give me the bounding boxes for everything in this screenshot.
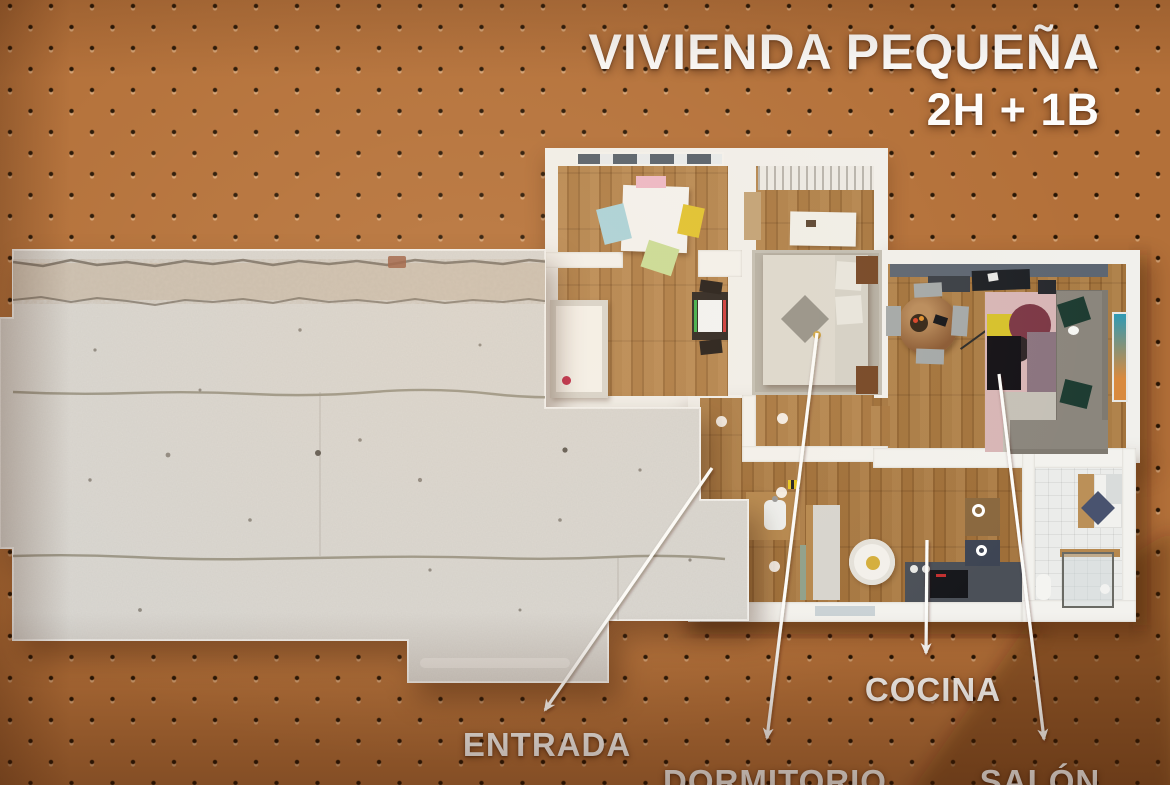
kitchen-sink [764,500,786,530]
dining-chair-left [886,306,901,336]
nightstand-2 [856,366,878,394]
painting [1112,312,1128,402]
nightstand-1 [856,256,878,284]
spotlight-4 [769,561,780,572]
fruit-red [913,318,918,323]
wall-bath-right [1122,448,1136,622]
cat [1068,326,1079,335]
closet [758,166,874,190]
kitchen-window [815,606,875,616]
wall-kids-stub-right [698,250,742,277]
rug-black-block [987,336,1021,390]
fruit-orange [919,316,924,321]
shower-head [1100,584,1110,594]
title-line-1: VIVIENDA PEQUEÑA [589,24,1100,81]
tv [972,269,1031,291]
dining-chair-right [951,305,969,336]
wall-bath-left [1022,448,1035,622]
cabinet-knob-ring-2 [976,545,987,556]
label-dormitorio: DORMITORIO [663,763,887,785]
kitchen-tall-cabinet [965,498,1000,536]
side-table [1038,280,1056,294]
lantern-bowl [866,556,880,570]
kitchen-island [806,505,840,600]
kids-desk-pens-right [723,300,726,332]
cabinet-knob-ring-1 [972,504,985,517]
poster-canvas: VIVIENDA PEQUEÑA 2H + 1B ENTRADADORMITOR… [0,0,1170,785]
tv-papers [987,272,998,282]
doorway-bedroom-living [871,406,890,446]
page-title: VIVIENDA PEQUEÑA 2H + 1B [589,24,1100,138]
crib-pillow [562,376,571,385]
sofa-chaise [1010,420,1108,454]
bedroom-desk [790,211,857,246]
mirror [1106,474,1122,504]
dining-table [898,295,958,355]
toilet [1036,574,1051,600]
bed-gold-knob [813,331,821,339]
kids-bench-pink [636,176,666,188]
kids-desk-pens-left [694,300,697,332]
label-salon: SALÓN [980,763,1101,785]
title-line-2: 2H + 1B [589,81,1100,138]
label-cocina: COCINA [865,671,1001,709]
oven-display [936,574,946,577]
bed-pillow-2 [835,295,863,325]
cooktop-knob-2 [922,565,930,573]
wall-bedroom-bottom [742,446,888,462]
spotlight-2 [777,413,788,424]
wardrobe [744,192,761,240]
toy-lego [788,480,800,489]
window-band [576,152,724,166]
cooktop-knob-1 [910,565,918,573]
label-entrada: ENTRADA [463,726,631,764]
rug-mauve-block [1027,332,1058,392]
spotlight-3 [776,487,787,498]
kids-desk-chair-bottom [699,339,722,355]
kids-desk-screen [698,300,722,332]
wall-kids-stub-left [545,252,623,268]
kitchen-faucet [772,496,778,502]
spotlight-5 [703,523,714,534]
dining-chair-bottom [916,349,945,365]
dining-chair-top [914,282,943,297]
shower-glass [1062,552,1114,608]
bedroom-desk-item [806,220,816,227]
spotlight-1 [716,416,727,427]
wall-bedroom-left [742,395,756,450]
